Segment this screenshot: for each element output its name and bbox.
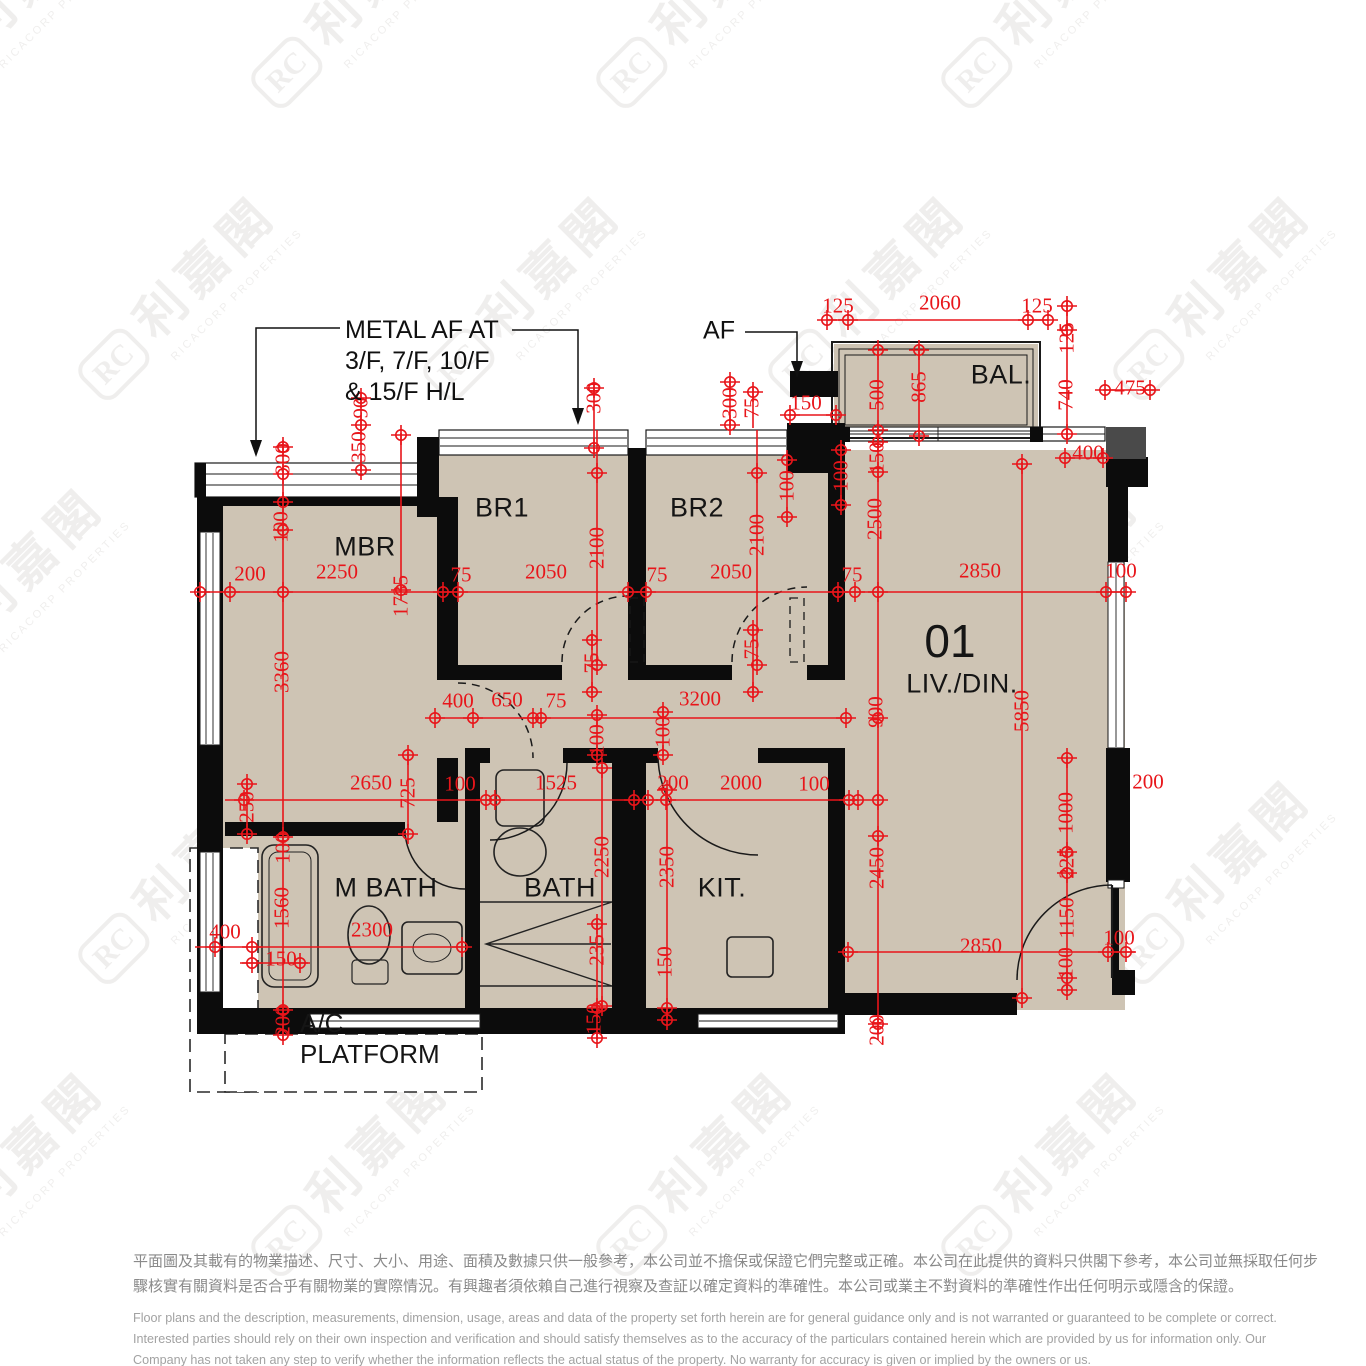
dimension-label: 500	[867, 379, 888, 411]
dimension-label: 150	[655, 946, 676, 978]
dimension-label: 2100	[587, 527, 608, 569]
dimension-label: 100	[271, 511, 292, 543]
metal-af-note: METAL AF AT 3/F, 7/F, 10/F & 15/F H/L	[345, 315, 499, 408]
disclaimer-zh-line2: 驟核實有關資料是否合乎有關物業的實際情況。有興趣者須依賴自己進行視察及查証以確定…	[133, 1274, 1318, 1299]
dimension-label: 475	[1114, 378, 1146, 399]
dimension-label: 400	[209, 922, 241, 943]
disclaimer-en-line3: Company has not taken any step to verify…	[133, 1350, 1318, 1366]
dimension-label: 200	[273, 1005, 294, 1037]
metal-af-line2: 3/F, 7/F, 10/F	[345, 346, 499, 377]
af-note: AF	[703, 317, 735, 346]
dimension-label: 2850	[960, 936, 1002, 957]
dimension-label: 125	[1057, 322, 1078, 354]
dimension-label: 3360	[272, 651, 293, 693]
dimension-label: 400	[442, 691, 474, 712]
dimension-label: 900	[866, 696, 887, 728]
room-label-livdin: LIV./DIN.	[906, 669, 1018, 700]
room-label-kit: KIT.	[698, 873, 747, 904]
ac-line2: PLATFORM	[300, 1039, 440, 1070]
dimension-label: 125	[1021, 296, 1053, 317]
dimension-label: 100	[798, 774, 830, 795]
dimension-label: 2300	[351, 920, 393, 941]
dimension-label: 2100	[747, 514, 768, 556]
dimension-label: 100	[1103, 928, 1135, 949]
dimension-label: 100	[653, 716, 674, 748]
dimension-label: 2450	[867, 847, 888, 889]
dimension-label: 2500	[865, 498, 886, 540]
dimension-label: 300	[273, 443, 294, 475]
dimension-label: 200	[234, 564, 266, 585]
dimension-label: 1150	[1057, 897, 1078, 938]
dimension-label: 2050	[525, 562, 567, 583]
dimension-label: 100	[1056, 947, 1077, 979]
dimension-label: 350	[349, 431, 370, 463]
dimension-label: 100	[831, 460, 852, 492]
floor-plan-drawing	[0, 0, 1366, 1366]
unit-number: 01	[924, 614, 975, 668]
dimension-label: 235	[587, 934, 608, 966]
dimension-label: 75	[842, 565, 863, 586]
dimension-label: 1735	[391, 575, 412, 617]
disclaimer-en-line1: Floor plans and the description, measure…	[133, 1308, 1318, 1329]
dimension-label: 2050	[710, 562, 752, 583]
dimension-label: 650	[491, 690, 523, 711]
room-label-mbr: MBR	[334, 532, 396, 563]
dimension-label: 200	[1132, 772, 1164, 793]
dimension-label: 2650	[350, 773, 392, 794]
disclaimer-en-line2: Interested parties should rely on their …	[133, 1329, 1318, 1350]
dimension-label: 250	[237, 791, 258, 823]
dimension-label: 865	[909, 371, 930, 403]
dimension-label: 2350	[657, 846, 678, 888]
dimension-label: 2250	[316, 562, 358, 583]
dimension-label: 3200	[679, 689, 721, 710]
dimension-label: 150	[265, 949, 297, 970]
room-label-bal: BAL.	[971, 360, 1032, 391]
dimension-label: 75	[582, 653, 603, 674]
dimension-label: 300	[584, 382, 605, 414]
dimension-label: 200	[867, 1014, 888, 1046]
dimension-label: 225	[1057, 847, 1078, 879]
dimension-label: 400	[1072, 443, 1104, 464]
dimension-label: 150	[584, 1003, 605, 1035]
dimension-label: 2060	[919, 293, 961, 314]
dimension-label: 100	[1105, 561, 1137, 582]
room-label-br2: BR2	[670, 493, 724, 524]
disclaimer-zh-line1: 平面圖及其載有的物業描述、尺寸、大小、用途、面積及數據只供一般參考，本公司並不擔…	[133, 1249, 1318, 1274]
dimension-label: 2850	[959, 561, 1001, 582]
dimension-label: 100	[587, 724, 608, 756]
dimension-label: 75	[742, 639, 763, 660]
dimension-label: 75	[546, 691, 567, 712]
disclaimer: 平面圖及其載有的物業描述、尺寸、大小、用途、面積及數據只供一般參考，本公司並不擔…	[133, 1249, 1318, 1366]
dimension-label: 75	[647, 565, 668, 586]
dimension-label: 200	[657, 773, 689, 794]
room-label-br1: BR1	[475, 493, 529, 524]
dimension-label: 1560	[272, 887, 293, 929]
dimension-label: 100	[777, 470, 798, 502]
floor-plan-page: RC利嘉閣RICACORP PROPERTIESRC利嘉閣RICACORP PR…	[0, 0, 1366, 1366]
dimension-label: 75	[742, 398, 763, 419]
dimension-label: 300	[720, 387, 741, 419]
dimension-label: 100	[444, 774, 476, 795]
metal-af-line1: METAL AF AT	[345, 315, 499, 346]
dimension-label: 75	[451, 565, 472, 586]
dimension-label: 150	[790, 393, 822, 414]
room-label-bath: BATH	[524, 873, 596, 904]
room-label-ac-platform: A/C PLATFORM	[300, 1008, 440, 1070]
dimension-label: 1000	[1056, 792, 1077, 834]
dimension-label: 150	[867, 442, 888, 474]
metal-af-line3: & 15/F H/L	[345, 377, 499, 408]
dimension-label: 100	[273, 832, 294, 864]
ac-line1: A/C	[300, 1008, 440, 1039]
dimension-label: 125	[822, 296, 854, 317]
room-label-mbath: M BATH	[335, 873, 438, 904]
dimension-label: 725	[398, 777, 419, 809]
dimension-label: 740	[1056, 379, 1077, 411]
dimension-label: 1525	[535, 773, 577, 794]
dimension-label: 2000	[720, 773, 762, 794]
